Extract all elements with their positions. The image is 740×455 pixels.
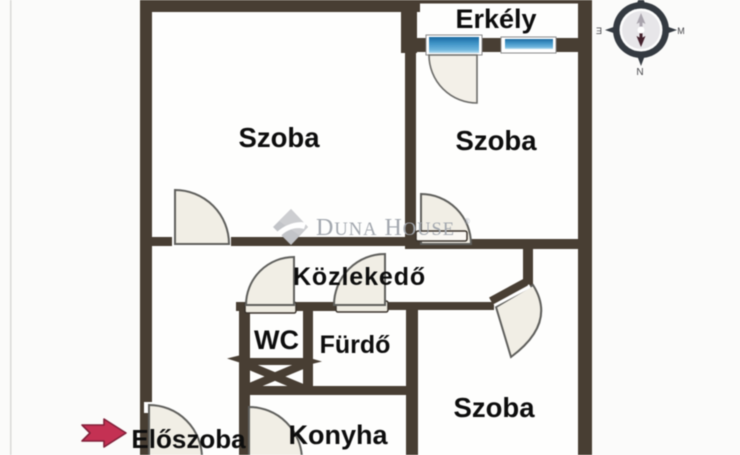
svg-text:Fürdő: Fürdő [320,331,391,359]
svg-text:M: M [677,26,685,36]
svg-text:WC: WC [254,325,299,355]
svg-text:Szoba: Szoba [456,125,538,156]
svg-text:N: N [636,67,643,78]
svg-text:E: E [596,26,602,36]
svg-text:Előszoba: Előszoba [131,424,246,454]
svg-text:Szoba: Szoba [454,392,536,423]
svg-text:Közlekedő: Közlekedő [293,263,426,291]
svg-text:®: ® [464,217,470,226]
svg-text:Erkély: Erkély [455,4,536,34]
svg-text:Konyha: Konyha [288,420,388,450]
svg-text:Szoba: Szoba [239,122,321,153]
